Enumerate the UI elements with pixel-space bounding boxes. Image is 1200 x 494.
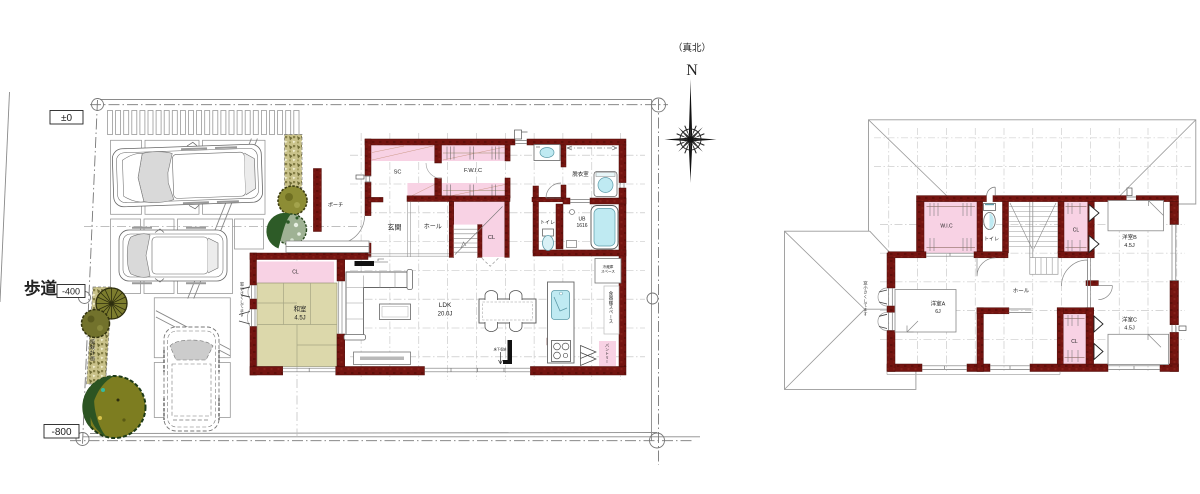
- svg-text:1616: 1616: [576, 223, 587, 229]
- svg-text:20.0J: 20.0J: [438, 312, 453, 318]
- svg-text:4.5J: 4.5J: [1124, 326, 1135, 332]
- svg-text:±0: ±0: [61, 113, 72, 124]
- svg-text:UB: UB: [579, 217, 587, 223]
- svg-text:4.5J: 4.5J: [1124, 243, 1135, 249]
- svg-text:窓小さくしてます: 窓小さくしてます: [239, 281, 245, 319]
- svg-text:玄関: 玄関: [388, 223, 402, 232]
- svg-text:LDK: LDK: [439, 302, 452, 309]
- svg-text:-400: -400: [62, 287, 80, 297]
- svg-text:（真北）: （真北）: [673, 42, 711, 54]
- svg-text:スペース: スペース: [601, 269, 615, 274]
- svg-text:F.W.I.C: F.W.I.C: [464, 168, 482, 174]
- svg-text:トイレ: トイレ: [540, 220, 555, 226]
- svg-text:CL: CL: [488, 235, 495, 241]
- svg-text:和室: 和室: [294, 304, 307, 313]
- svg-text:CL: CL: [292, 270, 299, 276]
- svg-text:歩道: 歩道: [24, 278, 58, 298]
- svg-text:-800: -800: [51, 427, 71, 438]
- svg-text:CL: CL: [1073, 228, 1080, 234]
- svg-text:4.5J: 4.5J: [294, 316, 305, 322]
- svg-text:ホール: ホール: [1013, 288, 1030, 295]
- svg-text:冷蔵庫: 冷蔵庫: [603, 264, 614, 269]
- svg-text:ホール: ホール: [424, 224, 442, 231]
- svg-text:窓小さくしてます: 窓小さくしてます: [863, 280, 869, 318]
- svg-text:SC: SC: [394, 170, 402, 176]
- svg-text:トイレ: トイレ: [984, 237, 999, 243]
- svg-text:床下収納: 床下収納: [494, 347, 507, 352]
- svg-text:CL: CL: [1071, 339, 1078, 345]
- svg-text:植栽計画: 植栽計画: [89, 338, 95, 362]
- svg-text:6J: 6J: [935, 309, 941, 315]
- svg-text:N: N: [686, 62, 698, 79]
- svg-text:パントリー: パントリー: [604, 344, 609, 364]
- svg-text:食器棚スペース: 食器棚スペース: [608, 290, 614, 324]
- svg-text:W.I.C: W.I.C: [940, 224, 953, 230]
